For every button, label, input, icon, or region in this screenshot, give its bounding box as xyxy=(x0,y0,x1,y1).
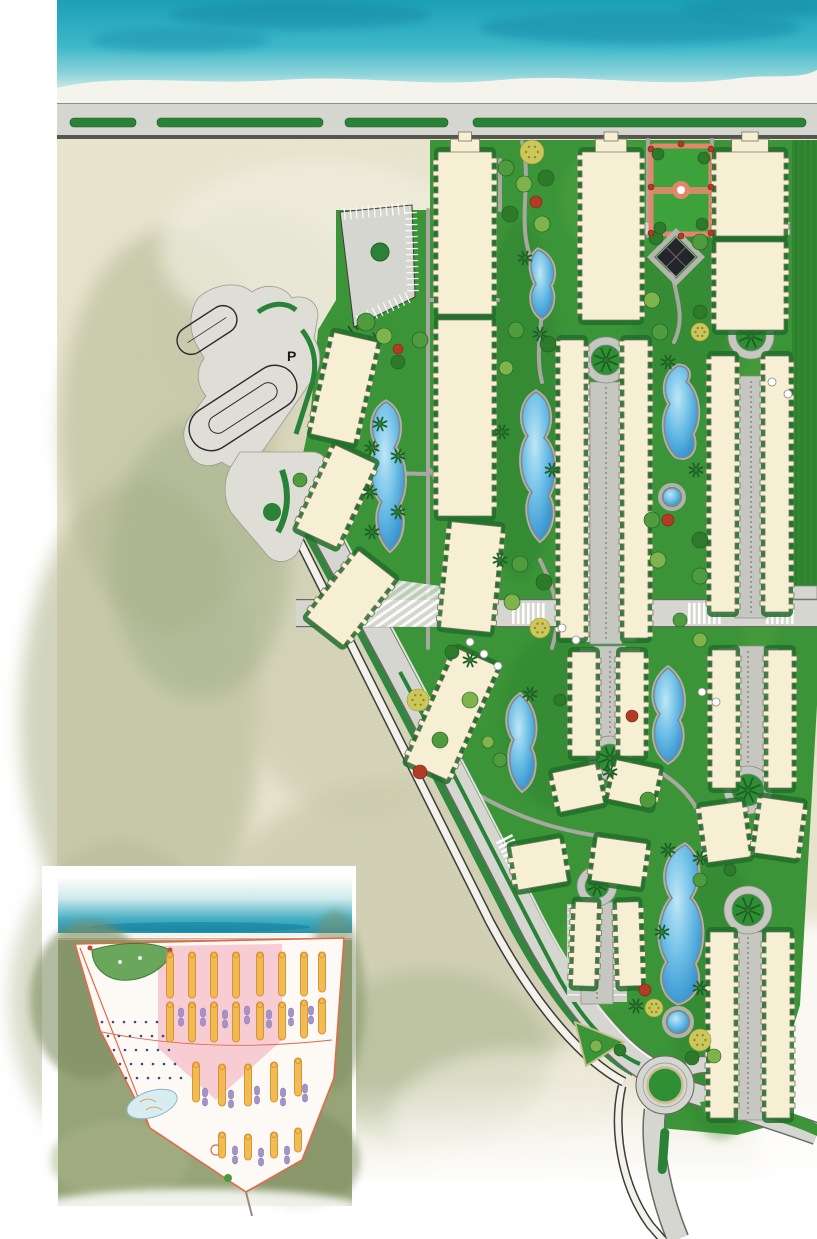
site-plan-svg: P P xyxy=(0,0,817,1239)
master-plan-rendering: P P xyxy=(0,0,817,1239)
road-median-strips xyxy=(70,118,806,127)
inset-key-map xyxy=(30,866,365,1225)
roundabout xyxy=(636,1056,694,1114)
parking-label-upper: P xyxy=(287,348,296,364)
beach-road xyxy=(57,103,817,139)
sea xyxy=(57,0,817,104)
